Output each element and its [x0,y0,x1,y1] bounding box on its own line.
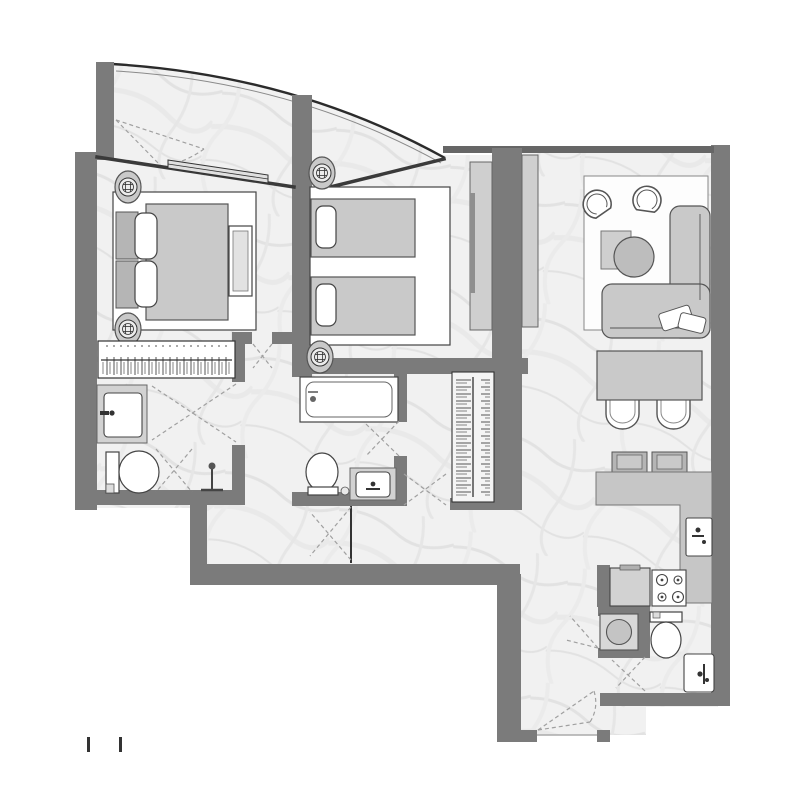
bedroom-1 [98,171,256,378]
pillow-bottom [135,261,157,307]
guest-bath-bottom-wall [600,693,730,706]
living-tv-console [522,155,538,327]
bar-stool-2 [652,452,687,473]
bedside-lamp-4 [307,341,333,373]
toilet-master [106,451,159,493]
pillow-top [135,213,157,259]
bedroom-divider-wall [292,95,312,377]
refrigerator [610,565,650,606]
cooktop [652,570,686,606]
hall-closet [452,372,494,502]
master-bath-bottom-wall [75,490,240,505]
corridor-floor [207,503,522,567]
scale-tick-1 [87,737,90,752]
corridor-bottom-wall [193,564,520,585]
guest-bath-left-wall [637,606,650,658]
vanity-sink-2 [350,468,396,500]
foot-bench [229,226,252,296]
bar-stool-1 [612,452,647,473]
bedside-lamp-2 [115,313,141,345]
bedroom-1-bottom-wall-b [272,332,294,344]
entry-left-wall [497,574,521,742]
kitchen-sink [686,518,712,556]
coffee-table [614,237,654,277]
scale-tick-2 [119,737,122,752]
vanity-sink-master [97,385,147,443]
toilet-guest [650,612,682,658]
right-outer-wall [711,145,730,705]
washing-machine [600,614,638,650]
top-left-stub-wall [96,62,114,160]
floor-plan [0,0,800,800]
entry-bottom-wall-left [497,730,537,742]
floor-plan-page [0,0,800,800]
dining-table [597,351,702,400]
living-top-wall [443,146,714,153]
sink-guest [684,654,714,692]
twin-bed-1-pillow [316,206,336,248]
bedside-lamp-1 [115,171,141,203]
bathtub [300,377,398,422]
kitchen-bottom-stub-wall [597,565,610,607]
left-outer-wall [75,152,97,510]
bedroom-2-tv-console [470,162,492,330]
scale-marks [87,737,122,752]
master-bath-right-wall [232,445,245,505]
master-wardrobe [98,341,235,378]
bedside-lamp-3 [309,157,335,189]
entry-door-jamb [597,730,610,742]
mid-thick-wall [492,148,522,510]
twin-bed-2-pillow [316,284,336,326]
double-bed-mattress [146,204,228,320]
